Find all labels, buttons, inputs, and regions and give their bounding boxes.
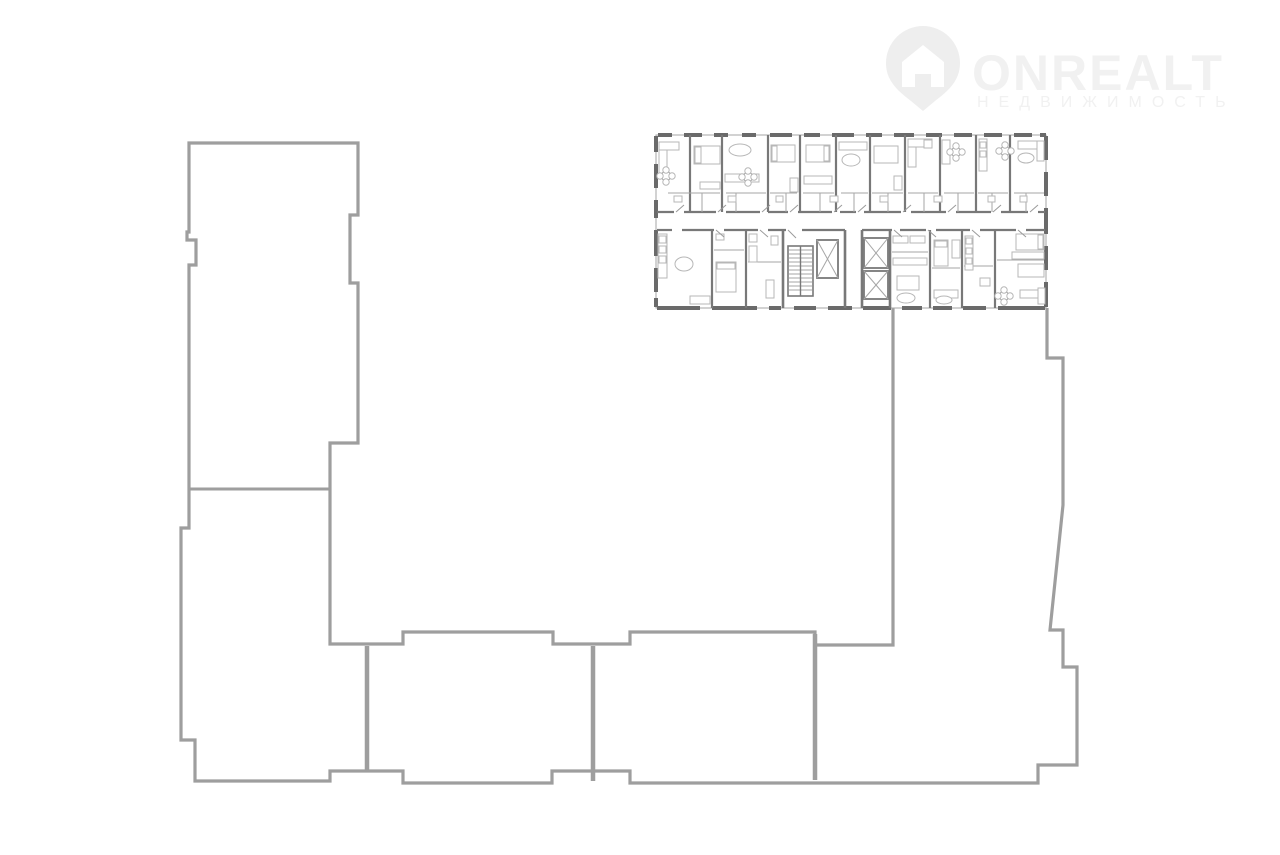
chair (995, 293, 1001, 299)
chair (996, 148, 1002, 154)
furniture-item (659, 236, 666, 243)
furniture-table (897, 293, 915, 303)
furniture-item (935, 241, 947, 247)
furniture-item (980, 278, 990, 286)
chair (739, 174, 745, 180)
furniture-item (790, 178, 798, 192)
furniture-item (893, 236, 908, 243)
door-leaf (676, 205, 684, 212)
furniture-item (934, 196, 942, 202)
furniture-item (1038, 235, 1043, 249)
furniture-item (695, 147, 701, 163)
furniture-item (1038, 288, 1045, 304)
furniture-item (1037, 141, 1044, 161)
furniture-item (910, 236, 925, 243)
chair (669, 173, 675, 179)
chair (751, 174, 757, 180)
furniture-table (842, 154, 860, 166)
furniture-item (824, 146, 829, 161)
apartment-plan (656, 135, 1046, 308)
brand-subtitle: НЕДВИЖИМОСТЬ (977, 94, 1236, 111)
chair (953, 143, 959, 149)
brand-name: ONREALT (972, 45, 1224, 101)
elevator-shaft (864, 238, 888, 268)
furniture-table (1018, 153, 1034, 163)
chair (663, 167, 669, 173)
furniture-item (717, 263, 735, 269)
chair (745, 168, 751, 174)
furniture-item (659, 142, 679, 150)
floor-plan-page: ONREALT НЕДВИЖИМОСТЬ (0, 0, 1280, 855)
door-leaf (1030, 205, 1038, 212)
furniture-item (1012, 252, 1044, 259)
furniture-item (874, 146, 898, 163)
chair (663, 179, 669, 185)
chair (959, 149, 965, 155)
door-leaf (760, 230, 768, 237)
furniture-item (700, 182, 720, 189)
door-leaf (790, 205, 798, 212)
chair (1008, 148, 1014, 154)
building-footprint-path (181, 143, 1077, 783)
furniture-item (804, 176, 832, 184)
floor-plan-svg: ONREALT НЕДВИЖИМОСТЬ (0, 0, 1280, 855)
furniture-item (1020, 196, 1027, 202)
furniture-item (728, 196, 736, 202)
furniture-item (776, 196, 783, 202)
furniture-item (674, 196, 682, 202)
furniture-item (894, 176, 902, 190)
furniture-item (830, 196, 838, 202)
chair (1002, 154, 1008, 160)
furniture-table (729, 144, 751, 156)
furniture-item (966, 248, 972, 254)
furniture-item (749, 246, 757, 262)
furniture-item (1018, 264, 1044, 277)
furniture-item (659, 256, 666, 263)
chair (953, 155, 959, 161)
chair (1002, 142, 1008, 148)
chair (1001, 287, 1007, 293)
furniture-item (766, 280, 774, 298)
door-leaf (993, 205, 1001, 212)
chair (1001, 299, 1007, 305)
table-with-chairs (996, 142, 1014, 160)
furniture-item (980, 142, 986, 148)
furniture-item (690, 296, 710, 304)
building-outline (181, 143, 1077, 783)
furniture-item (924, 140, 932, 148)
table-with-chairs (995, 287, 1013, 305)
elevator-shaft (817, 240, 838, 278)
furniture-item (966, 238, 972, 244)
logo-watermark: ONREALT НЕДВИЖИМОСТЬ (886, 26, 1236, 111)
door-leaf (948, 205, 956, 212)
furniture-item (966, 258, 972, 264)
furniture-item (716, 234, 724, 240)
furniture-item (771, 236, 778, 245)
staircase (788, 246, 813, 296)
chair (947, 149, 953, 155)
furniture-item (988, 196, 995, 202)
elevator-shaft (864, 271, 888, 299)
building-section-dividers (189, 489, 815, 781)
furniture-table (675, 257, 693, 271)
chair (657, 173, 663, 179)
furniture-item (659, 246, 666, 253)
chair (1007, 293, 1013, 299)
furniture-table (936, 296, 952, 304)
furniture-item (980, 151, 986, 157)
furniture-item (880, 196, 888, 202)
furniture-item (749, 234, 757, 242)
furniture-item (897, 276, 919, 290)
chair (745, 180, 751, 186)
table-with-chairs (739, 168, 757, 186)
furniture-item (893, 258, 927, 265)
furniture-item (772, 146, 777, 161)
door-leaf (788, 230, 796, 238)
furniture-item (839, 142, 867, 150)
furniture-item (952, 240, 960, 258)
